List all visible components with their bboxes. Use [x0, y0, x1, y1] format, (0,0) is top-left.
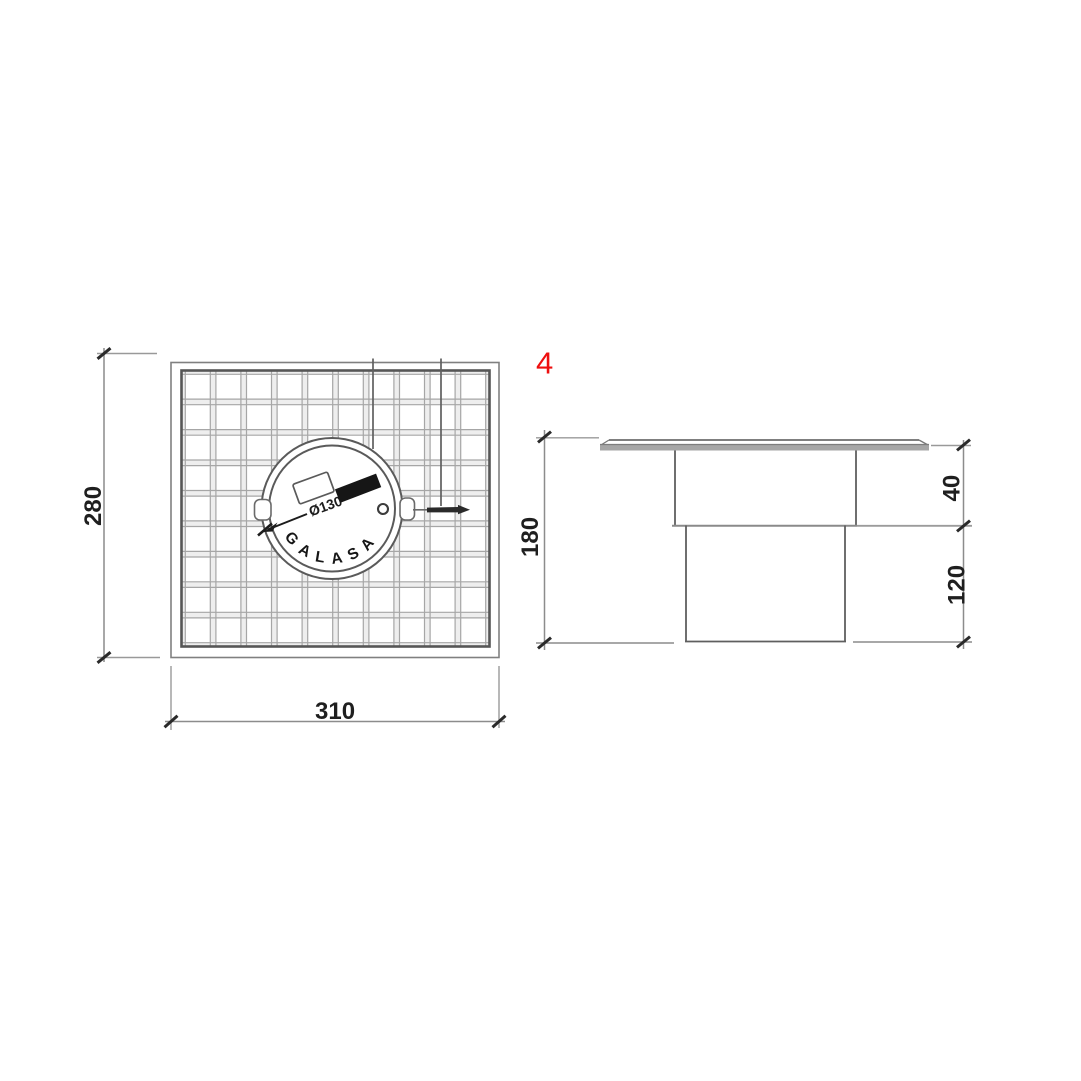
svg-text:280: 280	[80, 486, 107, 526]
svg-text:310: 310	[315, 698, 355, 725]
svg-text:120: 120	[944, 565, 971, 605]
svg-text:180: 180	[517, 517, 544, 557]
svg-text:40: 40	[939, 475, 966, 502]
svg-text:4: 4	[536, 346, 553, 381]
